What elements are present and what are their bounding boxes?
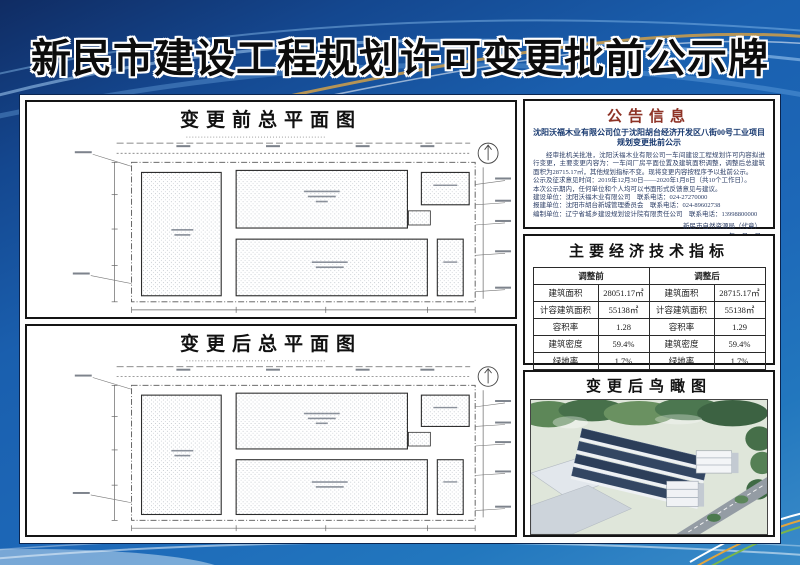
notice-board: 新民市建设工程规划许可变更批前公示牌 变更前总平面图 bbox=[0, 0, 800, 565]
header-after: 调整后 bbox=[649, 268, 765, 285]
row-label: 建筑面积 bbox=[649, 285, 714, 302]
table-row: 计容建筑面积 55138㎡ 计容建筑面积 55138㎡ bbox=[533, 302, 765, 319]
row-value-before: 1.28 bbox=[598, 319, 649, 336]
row-label: 容积率 bbox=[649, 319, 714, 336]
site-plan-drawing bbox=[27, 132, 515, 319]
notice-body-line: 编制单位：辽宁省城乡建设规划设计院有限责任公司 联系电话：13998800000 bbox=[533, 211, 765, 219]
north-arrow-icon bbox=[478, 143, 498, 163]
notice-body-paragraph: 经审批机关批准，沈阳沃福木业有限公司一车间建设工程规划许可内容拟进行变更，主要变… bbox=[533, 152, 765, 177]
notice-body-line: 公示及征求意见时间：2019年12月30日——2020年1月8日（共10个工作日… bbox=[533, 177, 765, 185]
table-row: 建筑面积 28051.17㎡ 建筑面积 28715.17㎡ bbox=[533, 285, 765, 302]
road-lines bbox=[117, 137, 471, 153]
row-label: 建筑面积 bbox=[533, 285, 598, 302]
north-arrow-icon bbox=[478, 367, 498, 387]
panel-plan-before: 变更前总平面图 bbox=[25, 100, 517, 319]
row-label: 计容建筑面积 bbox=[533, 302, 598, 319]
header-before: 调整前 bbox=[533, 268, 649, 285]
notice-body-line: 报建单位：沈阳市胡台新城管理委员会 联系电话：024-89602738 bbox=[533, 202, 765, 210]
notice-body: 经审批机关批准，沈阳沃福木业有限公司一车间建设工程规划许可内容拟进行变更，主要变… bbox=[525, 152, 773, 220]
row-value-after: 59.4% bbox=[714, 336, 765, 353]
content-sheet: 变更前总平面图 bbox=[20, 95, 780, 543]
row-label: 建筑密度 bbox=[649, 336, 714, 353]
table-row: 绿地率 1.7% 绿地率 1.7% bbox=[533, 353, 765, 370]
building-footprints bbox=[142, 393, 470, 514]
table-row: 容积率 1.28 容积率 1.29 bbox=[533, 319, 765, 336]
aerial-title: 变更后鸟瞰图 bbox=[525, 375, 773, 396]
row-label: 容积率 bbox=[533, 319, 598, 336]
plan-after-drawing bbox=[27, 356, 515, 537]
row-label: 计容建筑面积 bbox=[649, 302, 714, 319]
table-header-row: 调整前 调整后 bbox=[533, 268, 765, 285]
notice-subtitle-line2: 规划变更批前公示 bbox=[531, 138, 767, 148]
indicators-table: 调整前 调整后 建筑面积 28051.17㎡ 建筑面积 28715.17㎡ 计容… bbox=[533, 267, 766, 370]
panel-plan-after: 变更后总平面图 bbox=[25, 324, 517, 537]
board-title: 新民市建设工程规划许可变更批前公示牌 bbox=[0, 26, 800, 84]
plan-after-title: 变更后总平面图 bbox=[27, 329, 515, 356]
building-footprints bbox=[142, 170, 470, 295]
notice-subtitle: 沈阳沃福木业有限公司位于沈阳胡台经济开发区八街00号工业项目 规划变更批前公示 bbox=[525, 128, 773, 149]
notice-title: 公告信息 bbox=[525, 105, 773, 126]
indicators-title: 主要经济技术指标 bbox=[525, 240, 773, 261]
table-row: 建筑密度 59.4% 建筑密度 59.4% bbox=[533, 336, 765, 353]
notice-sign-org: 新民市自然资源局（代章） bbox=[525, 222, 761, 232]
panel-indicators: 主要经济技术指标 调整前 调整后 建筑面积 28051.17㎡ 建筑面积 287… bbox=[523, 234, 775, 365]
row-value-after: 28715.17㎡ bbox=[714, 285, 765, 302]
notice-subtitle-line1: 沈阳沃福木业有限公司位于沈阳胡台经济开发区八街00号工业项目 bbox=[531, 128, 767, 138]
site-plan-drawing bbox=[27, 356, 515, 537]
row-value-before: 55138㎡ bbox=[598, 302, 649, 319]
row-value-before: 28051.17㎡ bbox=[598, 285, 649, 302]
row-value-after: 55138㎡ bbox=[714, 302, 765, 319]
panel-aerial: 变更后鸟瞰图 bbox=[523, 370, 775, 537]
aerial-rendering bbox=[530, 399, 768, 535]
row-value-before: 1.7% bbox=[598, 353, 649, 370]
row-label: 建筑密度 bbox=[533, 336, 598, 353]
row-value-after: 1.7% bbox=[714, 353, 765, 370]
row-label: 绿地率 bbox=[533, 353, 598, 370]
plan-before-title: 变更前总平面图 bbox=[27, 105, 515, 132]
plan-before-drawing bbox=[27, 132, 515, 319]
row-value-after: 1.29 bbox=[714, 319, 765, 336]
row-label: 绿地率 bbox=[649, 353, 714, 370]
notice-body-line: 本次公示期内，任何单位和个人均可以书面形式反馈意见与建议。 bbox=[533, 186, 765, 194]
road-lines bbox=[117, 361, 471, 377]
panel-notice: 公告信息 沈阳沃福木业有限公司位于沈阳胡台经济开发区八街00号工业项目 规划变更… bbox=[523, 99, 775, 229]
row-value-before: 59.4% bbox=[598, 336, 649, 353]
